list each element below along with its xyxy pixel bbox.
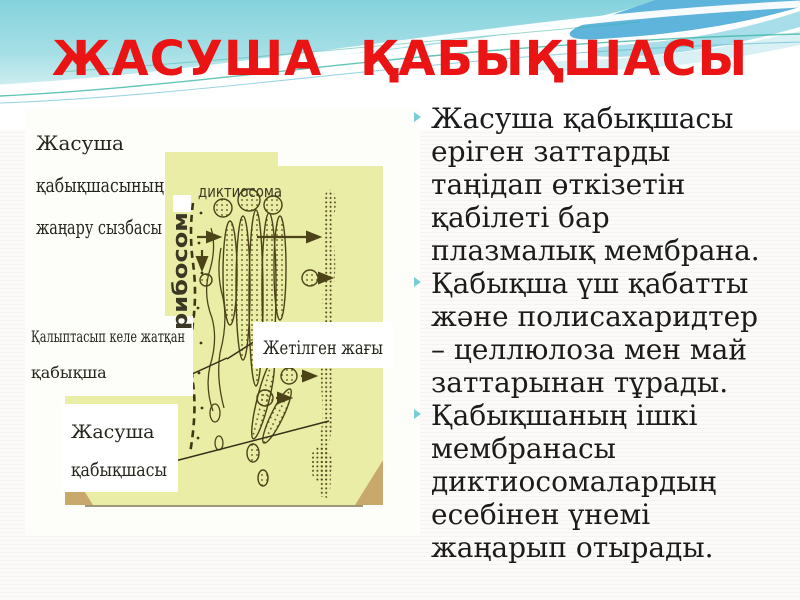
bullet-list: Жасуша қабықшасы еріген заттарды таңідап…: [414, 102, 794, 564]
bullet-text-line: жаңарып отырады.: [431, 531, 794, 564]
cell-wall-bulge: [310, 446, 332, 482]
bullet-text-line: еріген заттарды: [431, 135, 794, 168]
bullet-text-line: диктиосомалардың: [431, 465, 794, 498]
dictyosome-label: диктиосома: [198, 182, 282, 201]
cell-membrane-diagram: рибосом диктиосома Жасуша қабықшасының ж…: [25, 108, 420, 535]
diagram-caption-line3: жаңару сызбасы: [36, 215, 162, 239]
forming-label-line1: Қалыптасып келе жатқан: [31, 327, 185, 346]
bullet-text-line: плазмалық мембрана.: [431, 234, 794, 267]
bullet-arrow-icon: [414, 112, 421, 122]
bullet-text-line: Жасуша қабықшасы: [431, 102, 794, 135]
white-patch: [173, 195, 191, 212]
slide: ЖАСУША ҚАБЫҚШАСЫ: [0, 0, 800, 600]
forming-label-line2: қабықша: [31, 363, 107, 382]
bullet-arrow-icon: [414, 409, 421, 419]
bullet-item: Жасуша қабықшасы еріген заттарды таңідап…: [414, 102, 794, 267]
bullet-arrow-icon: [414, 277, 421, 287]
slide-title: ЖАСУША ҚАБЫҚШАСЫ: [0, 28, 800, 94]
diagram-caption-line2: қабықшасының: [36, 173, 164, 197]
membrane-label-line2: қабықшасы: [71, 459, 167, 481]
bullet-item: Қабықша үш қабатты және полисахаридтер –…: [414, 267, 794, 399]
membrane-label-line1: Жасуша: [71, 421, 155, 443]
diagram-caption-line1: Жасуша: [36, 131, 124, 155]
bullet-text-line: – целлюлоза мен май: [431, 333, 794, 366]
bullet-item: Қабықшаның ішкі мембранасы диктиосомалар…: [414, 399, 794, 564]
bullet-text-line: таңідап өткізетін: [431, 168, 794, 201]
mature-side-label: Жетілген жағы: [263, 337, 383, 359]
ribosome-label: рибосом: [168, 212, 192, 330]
bullet-text-line: Қабықша үш қабатты: [431, 267, 794, 300]
bullet-text-line: заттарынан тұрады.: [431, 366, 794, 399]
bullet-text-line: Қабықшаның ішкі: [431, 399, 794, 432]
bullet-text-line: мембранасы: [431, 432, 794, 465]
bullet-text-line: және полисахаридтер: [431, 300, 794, 333]
bullet-text-line: қабілеті бар: [431, 201, 794, 234]
bullet-text-line: есебінен үнемі: [431, 498, 794, 531]
